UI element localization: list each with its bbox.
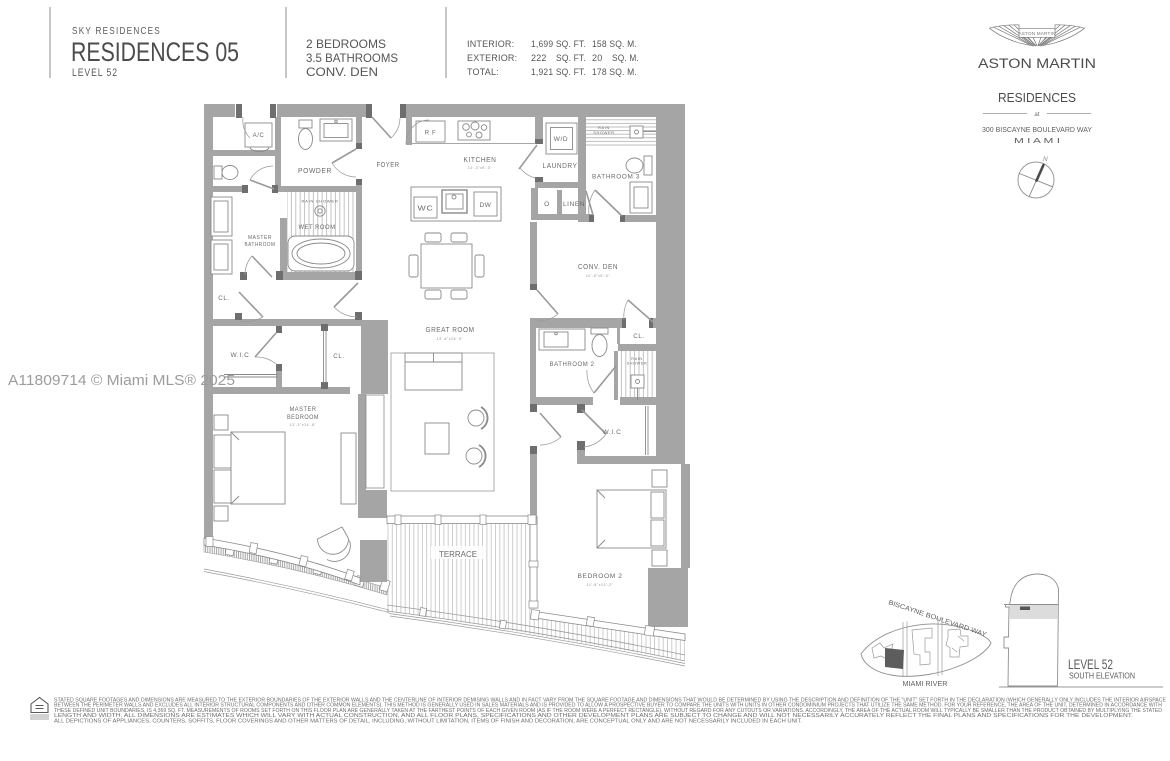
svg-text:at: at bbox=[1034, 111, 1040, 118]
svg-text:RESIDENCES: RESIDENCES bbox=[998, 91, 1076, 105]
svg-text:DW: DW bbox=[479, 202, 491, 209]
svg-text:A11809714 © Miami MLS® 2025: A11809714 © Miami MLS® 2025 bbox=[8, 373, 235, 389]
svg-text:BEDROOM: BEDROOM bbox=[287, 414, 319, 421]
svg-text:A/C: A/C bbox=[253, 133, 265, 139]
svg-text:2 BEDROOMS: 2 BEDROOMS bbox=[306, 37, 386, 51]
svg-text:KITCHEN: KITCHEN bbox=[464, 157, 497, 164]
svg-text:11'-8"x13'-2": 11'-8"x13'-2" bbox=[587, 583, 614, 587]
svg-text:RAIN SHOWER: RAIN SHOWER bbox=[302, 199, 339, 204]
svg-text:WET ROOM: WET ROOM bbox=[299, 224, 336, 231]
svg-text:GREAT ROOM: GREAT ROOM bbox=[426, 325, 475, 334]
svg-text:13'-6"x26'-9": 13'-6"x26'-9" bbox=[437, 337, 464, 341]
svg-text:BATHROOM 3: BATHROOM 3 bbox=[592, 174, 640, 181]
svg-text:N: N bbox=[1043, 156, 1048, 163]
svg-text:LAUNDRY: LAUNDRY bbox=[543, 163, 578, 170]
svg-text:CONV. DEN: CONV. DEN bbox=[578, 264, 618, 271]
svg-text:158 SQ. M.: 158 SQ. M. bbox=[592, 39, 637, 49]
svg-text:MASTER: MASTER bbox=[248, 235, 272, 241]
svg-text:SQ. FT.: SQ. FT. bbox=[556, 53, 586, 63]
svg-text:BATHROOM 2: BATHROOM 2 bbox=[550, 361, 595, 368]
svg-text:SHOWER: SHOWER bbox=[593, 130, 615, 135]
svg-text:SKY RESIDENCES: SKY RESIDENCES bbox=[72, 25, 161, 37]
svg-text:SHOWER: SHOWER bbox=[627, 362, 648, 366]
svg-text:300 BISCAYNE BOULEVARD WAY: 300 BISCAYNE BOULEVARD WAY bbox=[982, 125, 1092, 134]
svg-text:O: O bbox=[544, 201, 550, 208]
svg-text:178 SQ. M.: 178 SQ. M. bbox=[592, 67, 637, 77]
svg-text:TOTAL:: TOTAL: bbox=[467, 67, 499, 77]
svg-text:10'-3"x9'-0": 10'-3"x9'-0" bbox=[468, 166, 492, 170]
svg-text:ASTON MARTIN: ASTON MARTIN bbox=[978, 56, 1096, 71]
svg-text:CONV. DEN: CONV. DEN bbox=[306, 65, 378, 79]
svg-text:W/D: W/D bbox=[554, 136, 568, 143]
svg-text:EXTERIOR:: EXTERIOR: bbox=[467, 53, 517, 63]
svg-text:CL.: CL. bbox=[633, 333, 644, 340]
svg-text:W.I.C: W.I.C bbox=[603, 429, 622, 436]
svg-text:3.5 BATHROOMS: 3.5 BATHROOMS bbox=[306, 51, 398, 65]
svg-text:ASTON MARTIN: ASTON MARTIN bbox=[1019, 31, 1056, 36]
svg-text:RESIDENCES 05: RESIDENCES 05 bbox=[71, 37, 239, 67]
svg-text:SQ. M.: SQ. M. bbox=[612, 53, 639, 63]
svg-text:WC: WC bbox=[418, 206, 434, 213]
svg-text:MASTER: MASTER bbox=[290, 406, 317, 413]
svg-text:INTERIOR:: INTERIOR: bbox=[467, 39, 514, 49]
svg-text:LEVEL 52: LEVEL 52 bbox=[72, 67, 118, 79]
svg-text:FOYER: FOYER bbox=[377, 162, 400, 169]
svg-text:1,921 SQ. FT.: 1,921 SQ. FT. bbox=[531, 67, 586, 77]
svg-text:CL.: CL. bbox=[333, 353, 344, 360]
svg-text:LINEN: LINEN bbox=[563, 201, 585, 208]
svg-text:RAIN: RAIN bbox=[631, 357, 642, 361]
svg-text:20: 20 bbox=[592, 53, 602, 63]
svg-text:TERRACE: TERRACE bbox=[439, 549, 477, 559]
svg-text:222: 222 bbox=[531, 53, 547, 63]
svg-text:BATHROOM: BATHROOM bbox=[245, 242, 276, 248]
svg-text:10'-8"x9'-0": 10'-8"x9'-0" bbox=[586, 274, 610, 278]
svg-text:BEDROOM 2: BEDROOM 2 bbox=[578, 573, 623, 580]
svg-text:M I A M I: M I A M I bbox=[1014, 136, 1060, 145]
svg-text:R F: R F bbox=[425, 131, 436, 137]
svg-text:1,699 SQ. FT.: 1,699 SQ. FT. bbox=[531, 39, 586, 49]
svg-text:LEVEL 52: LEVEL 52 bbox=[1068, 657, 1113, 672]
svg-text:SOUTH ELEVATION: SOUTH ELEVATION bbox=[1069, 672, 1135, 681]
svg-text:W.I.C: W.I.C bbox=[231, 352, 250, 359]
svg-text:13'-3"x14'-8": 13'-3"x14'-8" bbox=[290, 423, 317, 427]
svg-text:CL.: CL. bbox=[218, 295, 229, 302]
svg-text:POWDER: POWDER bbox=[298, 168, 332, 175]
svg-text:MIAMI RIVER: MIAMI RIVER bbox=[903, 681, 948, 688]
svg-text:ALL DEPICTIONS OF APPLIANCES,: ALL DEPICTIONS OF APPLIANCES, COUNTERS, … bbox=[54, 718, 802, 724]
